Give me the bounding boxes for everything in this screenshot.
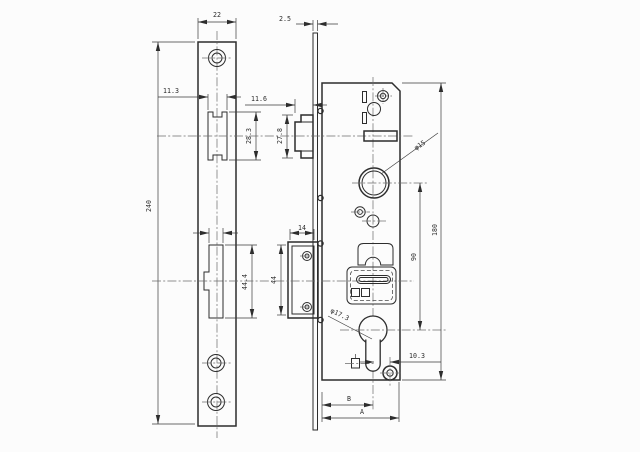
dim-post-offset: 10.3 <box>409 352 425 360</box>
lock-drawing: 22 240 11.3 28.3 44.4 <box>0 0 640 452</box>
bridge-cutout <box>358 244 393 266</box>
dim-deadbolt-opening-height: 44.4 <box>241 274 249 290</box>
gearbox-window <box>362 289 370 297</box>
gearbox-outline <box>347 267 396 304</box>
dim-strike-box-width: 14 <box>298 224 306 232</box>
faceplate-front-view <box>198 31 236 438</box>
gearbox-slot <box>357 276 391 284</box>
dim-cylinder-diameter: φ17.3 <box>329 307 350 323</box>
left-view-dimensions: 22 240 11.3 28.3 44.4 <box>145 11 261 424</box>
dim-case-height: 180 <box>431 224 439 236</box>
dim-faceplate-length: 240 <box>145 200 153 212</box>
slot <box>363 92 367 103</box>
slot <box>363 113 367 124</box>
dim-faceplate-width: 22 <box>213 11 221 19</box>
dim-latch-opening-width: 11.3 <box>163 87 179 95</box>
dim-follower-diameter: φ15 <box>413 139 427 152</box>
deadbolt-opening <box>204 245 223 318</box>
dim-strike-box-height: 44 <box>270 276 278 284</box>
gearbox-window <box>352 289 360 297</box>
dim-latch-projection: 11.6 <box>251 95 267 103</box>
dim-backset: B <box>347 395 351 403</box>
stop-hole <box>368 103 381 116</box>
lock-case-view: φ15 φ17.3 <box>152 77 447 411</box>
dim-case-depth: A <box>360 408 364 416</box>
dim-plate-thickness: 2.5 <box>279 15 291 23</box>
technical-drawing-canvas: 22 240 11.3 28.3 44.4 <box>0 0 640 452</box>
cylinder-hole-stem <box>366 340 380 372</box>
latch-bolt-profile <box>295 115 313 158</box>
dim-centre-distance: 90 <box>410 253 418 261</box>
